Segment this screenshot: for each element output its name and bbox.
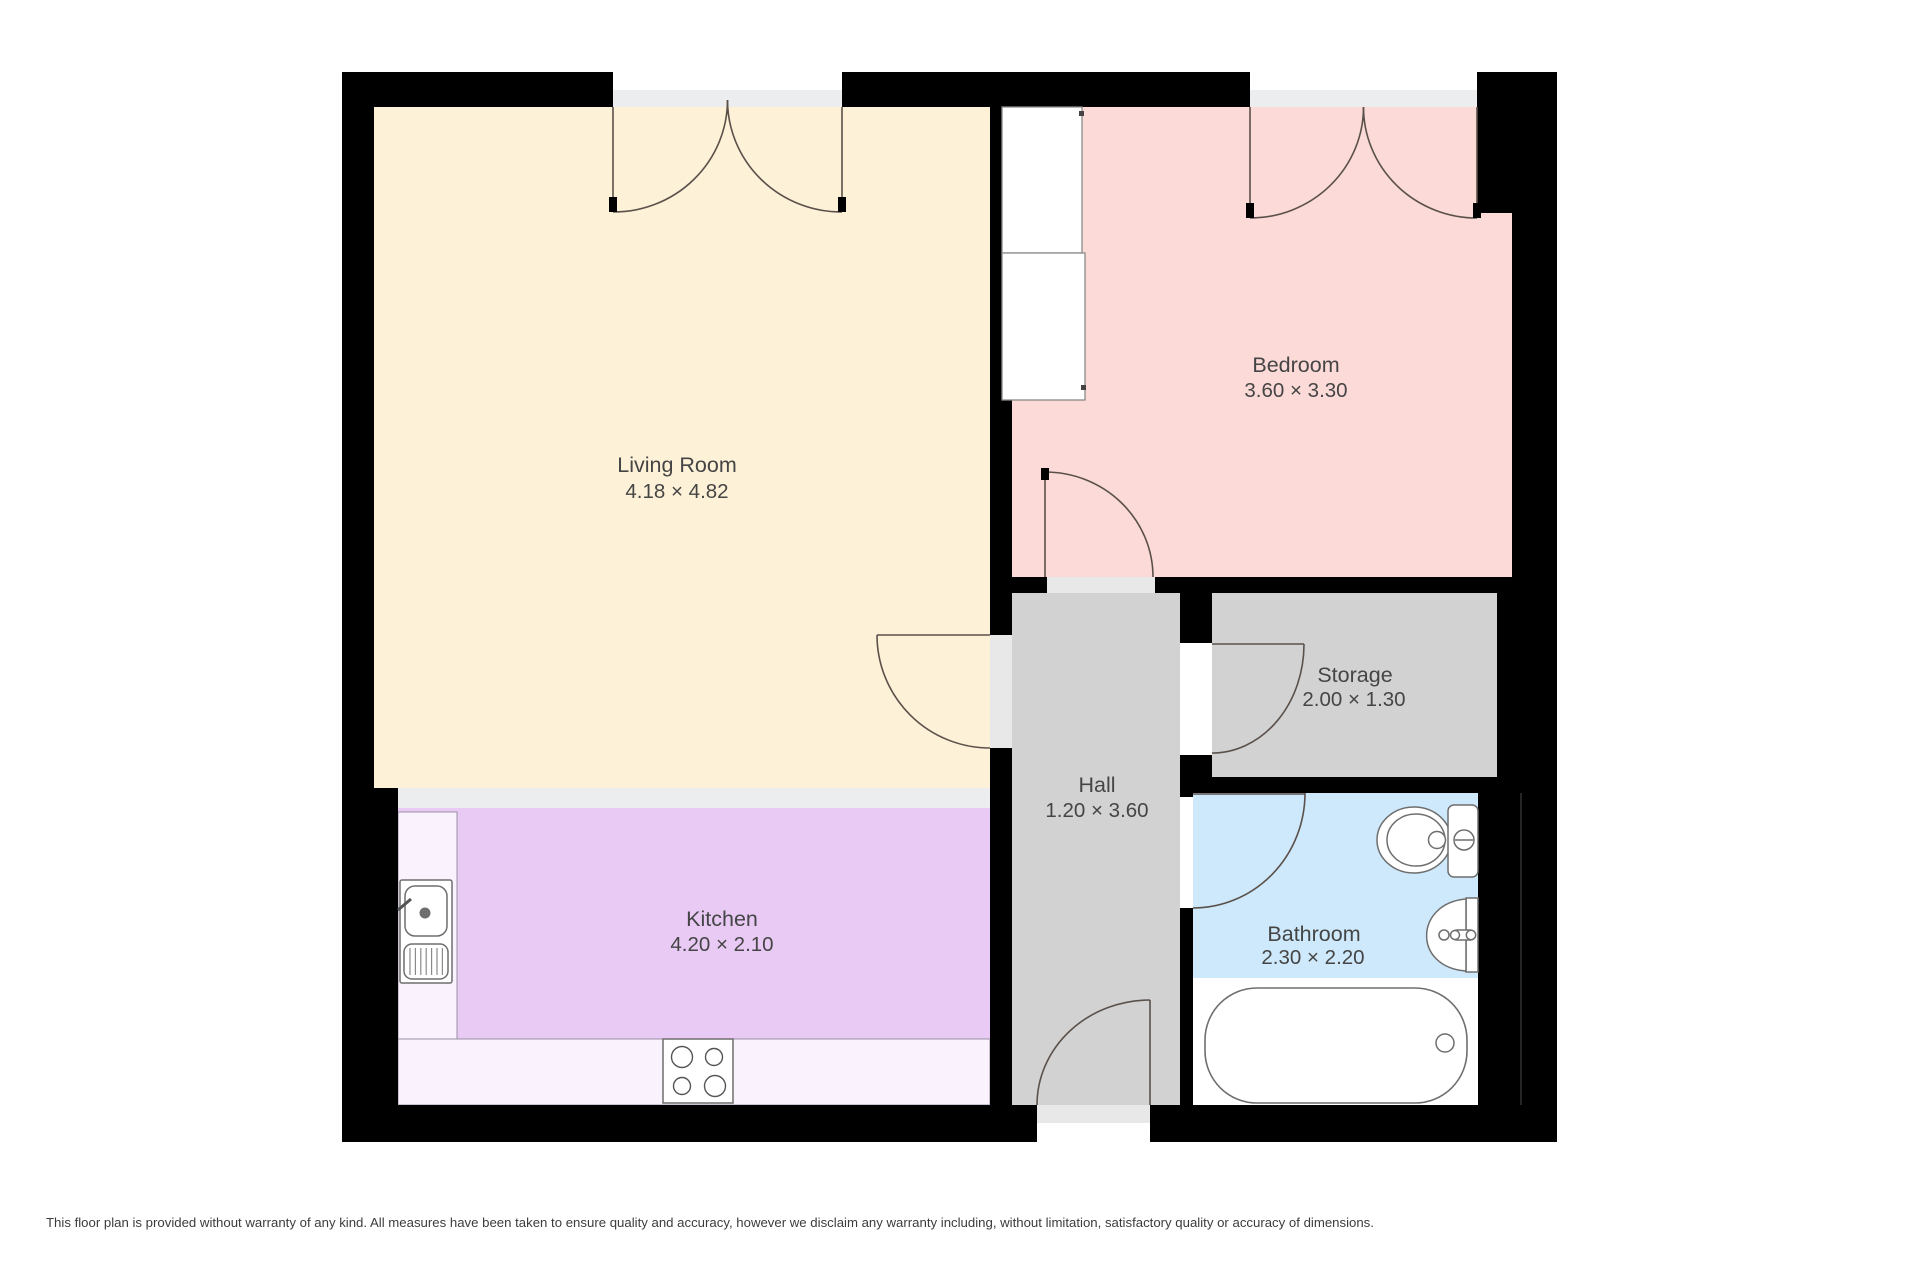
- sink-drainer-grooves: [410, 948, 442, 975]
- room-name: Bathroom: [1267, 922, 1360, 946]
- burner-icon: [706, 1049, 723, 1066]
- basin-drain-icon: [1439, 930, 1449, 940]
- floor-plan: Living Room 4.18 × 4.82 Kitchen 4.20 × 2…: [0, 0, 1920, 1280]
- storage-door-opening: [1180, 643, 1212, 755]
- burner-icon: [672, 1047, 693, 1068]
- kitchen-sink-unit: [398, 880, 452, 983]
- wall-storage-bottom: [1180, 777, 1557, 793]
- bathroom-door-opening: [1180, 797, 1193, 908]
- basin-faucet-knob-icon: [1451, 931, 1460, 940]
- room-dims: 3.60 × 3.30: [1244, 379, 1347, 402]
- hob: [663, 1039, 733, 1103]
- burner-icon: [705, 1076, 726, 1097]
- toilet: [1377, 805, 1478, 877]
- door-stub: [1246, 203, 1254, 218]
- wall-right-bathroom: [1478, 793, 1557, 1105]
- entrance-opening: [1037, 1123, 1150, 1142]
- kitchen-divider-strip: [374, 788, 990, 808]
- wardrobe-handle-bottom: [1081, 385, 1086, 390]
- wall-right-storage: [1497, 577, 1557, 793]
- room-dims: 4.18 × 4.82: [625, 480, 728, 503]
- room-name: Storage: [1317, 663, 1392, 687]
- room-dims: 2.00 × 1.30: [1302, 688, 1405, 711]
- room-name: Living Room: [617, 453, 737, 477]
- living-room-balcony-opening: [613, 72, 842, 90]
- door-stub: [1473, 203, 1481, 218]
- disclaimer-text: This floor plan is provided without warr…: [46, 1215, 1374, 1230]
- bedroom-balcony-opening: [1250, 72, 1477, 90]
- wardrobe-handle-top: [1079, 111, 1084, 116]
- wall-left-kitchen: [374, 788, 398, 1142]
- living-room-floor: [374, 107, 990, 788]
- bathtub: [1205, 988, 1467, 1103]
- door-stub: [609, 197, 617, 212]
- door-stub: [838, 197, 846, 212]
- bedroom-balcony-threshold: [1250, 90, 1477, 107]
- room-name: Bedroom: [1252, 353, 1339, 377]
- door-stub: [1041, 468, 1049, 480]
- room-label-bathroom: Bathroom 2.30 × 2.20: [1261, 922, 1364, 969]
- room-dims: 4.20 × 2.10: [670, 933, 773, 956]
- bathtub-drain-icon: [1436, 1034, 1454, 1052]
- sink-faucet-icon: [420, 908, 431, 919]
- living-room-hall-opening: [990, 635, 1012, 748]
- basin-faucet-knob-icon: [1466, 930, 1475, 939]
- wardrobe-lower-panel: [1002, 253, 1085, 400]
- wardrobe: [1002, 107, 1086, 400]
- hall-floor: [1012, 593, 1180, 1105]
- room-name: Hall: [1078, 773, 1115, 797]
- bedroom-hall-opening: [1047, 577, 1155, 593]
- bedroom-floor: [1012, 107, 1512, 577]
- wardrobe-upper-panel: [1002, 107, 1082, 253]
- bathtub-outline: [1205, 988, 1467, 1103]
- toilet-hinge-icon: [1429, 832, 1446, 849]
- wall-left: [342, 72, 374, 1142]
- room-dims: 1.20 × 3.60: [1045, 799, 1148, 822]
- entrance-threshold: [1037, 1105, 1150, 1123]
- wall-bottom: [342, 1105, 1557, 1142]
- wall-right-bedroom: [1512, 107, 1557, 577]
- room-name: Kitchen: [686, 907, 758, 931]
- wall-bedroom-door-return: [1477, 107, 1512, 213]
- room-dims: 2.30 × 2.20: [1261, 946, 1364, 969]
- burner-icon: [674, 1078, 691, 1095]
